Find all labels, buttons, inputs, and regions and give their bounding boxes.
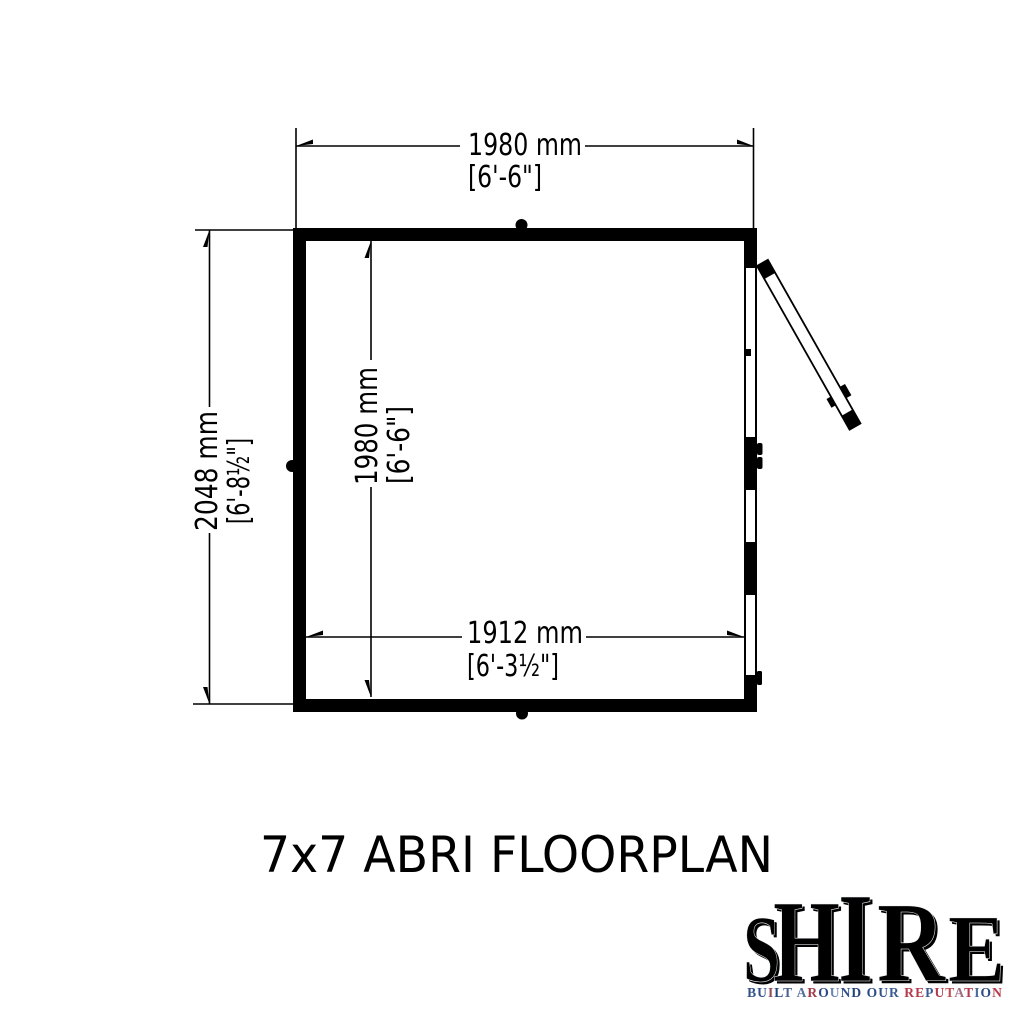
- door-jamb-hinge-mark: [746, 349, 752, 356]
- floorplan-drawing: 1980 mm [6'-6"] 2048 mm [6'-8½"] 1980 mm…: [0, 0, 1024, 1024]
- tagline-letter: N: [841, 985, 852, 1000]
- tagline-letter: A: [954, 985, 964, 1000]
- dim-inner-width-imperial: [6'-3½"]: [467, 649, 559, 684]
- arrow-top-right: [737, 140, 754, 147]
- tagline-letter: E: [915, 985, 925, 1000]
- tagline-letter: T: [783, 985, 793, 1000]
- tagline-letter: A: [797, 985, 808, 1000]
- tagline-letter: N: [992, 985, 1003, 1000]
- dim-top-metric: 1980 mm: [468, 128, 582, 163]
- logo-tagline: BUILT AROUND OUR REPUTATION: [744, 986, 1006, 1000]
- tagline-letter: U: [757, 985, 768, 1000]
- tagline-letter: T: [945, 985, 954, 1000]
- dimension-labels: 1980 mm [6'-6"] 2048 mm [6'-8½"] 1980 mm…: [190, 128, 583, 684]
- wall-dot-bottom: [516, 708, 528, 720]
- arrow-inner-v-down: [365, 680, 372, 697]
- page-title: 7x7 ABRI FLOORPLAN: [260, 826, 773, 884]
- door-latch-bump-1: [757, 443, 763, 455]
- tagline-letter: O: [867, 985, 879, 1000]
- dim-inner-height-metric: 1980 mm: [350, 367, 385, 485]
- tagline-letter: U: [934, 985, 945, 1000]
- floorplan-page: 1980 mm [6'-6"] 2048 mm [6'-8½"] 1980 mm…: [0, 0, 1024, 1024]
- tagline-letter: O: [818, 985, 830, 1000]
- tagline-letter: R: [889, 985, 900, 1000]
- dim-inner-width-metric: 1912 mm: [467, 616, 583, 651]
- frame-slot-upper: [746, 490, 755, 542]
- wall-top: [293, 228, 757, 241]
- frame-slot-lower: [746, 595, 755, 675]
- arrow-inner-h-right: [727, 631, 744, 638]
- door-latch-bump-2: [757, 457, 763, 469]
- tagline-letter: R: [904, 985, 915, 1000]
- dim-inner-height-imperial: [6'-6"]: [382, 406, 417, 484]
- tagline-letter: D: [851, 985, 862, 1000]
- tagline-letter: U: [878, 985, 889, 1000]
- wall-dot-top: [516, 219, 528, 231]
- door-leaf-panel: [757, 260, 860, 430]
- door-leaf: [753, 257, 866, 432]
- tagline-letter: L: [774, 985, 783, 1000]
- door-latch-bump-3: [757, 671, 762, 685]
- arrow-inner-h-left: [306, 631, 323, 638]
- dim-top-imperial: [6'-6"]: [468, 160, 542, 195]
- wall-dot-left: [286, 460, 298, 472]
- tagline-letter: O: [981, 985, 993, 1000]
- tagline-letter: B: [747, 985, 757, 1000]
- dim-left-imperial: [6'-8½"]: [222, 438, 257, 524]
- arrow-left-up: [203, 230, 210, 247]
- arrow-top-left: [296, 140, 313, 147]
- tagline-letter: U: [830, 985, 841, 1000]
- tagline-letter: T: [964, 985, 974, 1000]
- arrow-inner-v-up: [365, 241, 372, 258]
- dim-left-metric: 2048 mm: [190, 411, 225, 531]
- arrow-left-down: [203, 687, 210, 704]
- tagline-letter: R: [807, 985, 818, 1000]
